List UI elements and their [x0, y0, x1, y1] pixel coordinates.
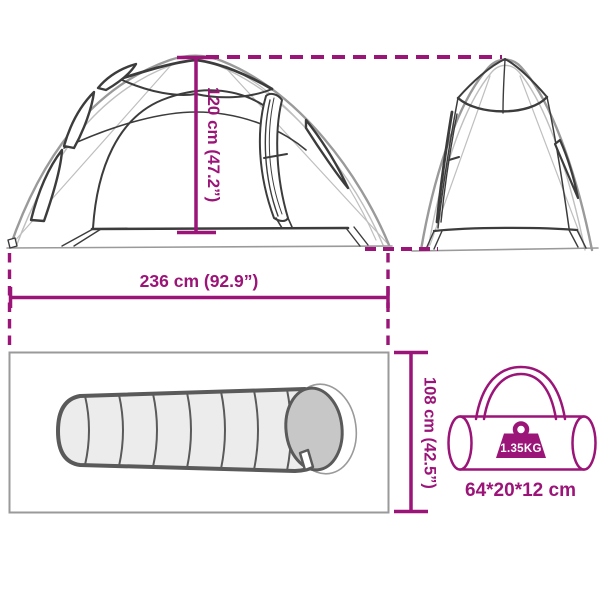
- inner-height-dimension-label: 108 cm (42.5”): [417, 352, 441, 513]
- packed-size-label: 64*20*12 cm: [450, 479, 591, 503]
- tent-height-dimension-label: 120 cm (47.2”): [201, 57, 225, 233]
- tent-side-view: [412, 59, 598, 251]
- product-dimension-diagram: 120 cm (47.2”) 236 cm (92.9”) 108 cm (42…: [0, 0, 600, 600]
- diagram-line-art: [0, 0, 600, 600]
- sleeping-bag-icon: [58, 380, 362, 478]
- tent-front-view: [7, 56, 392, 248]
- tent-width-dimension-label: 236 cm (92.9”): [9, 270, 389, 292]
- weight-label: 1.35KG: [494, 440, 548, 457]
